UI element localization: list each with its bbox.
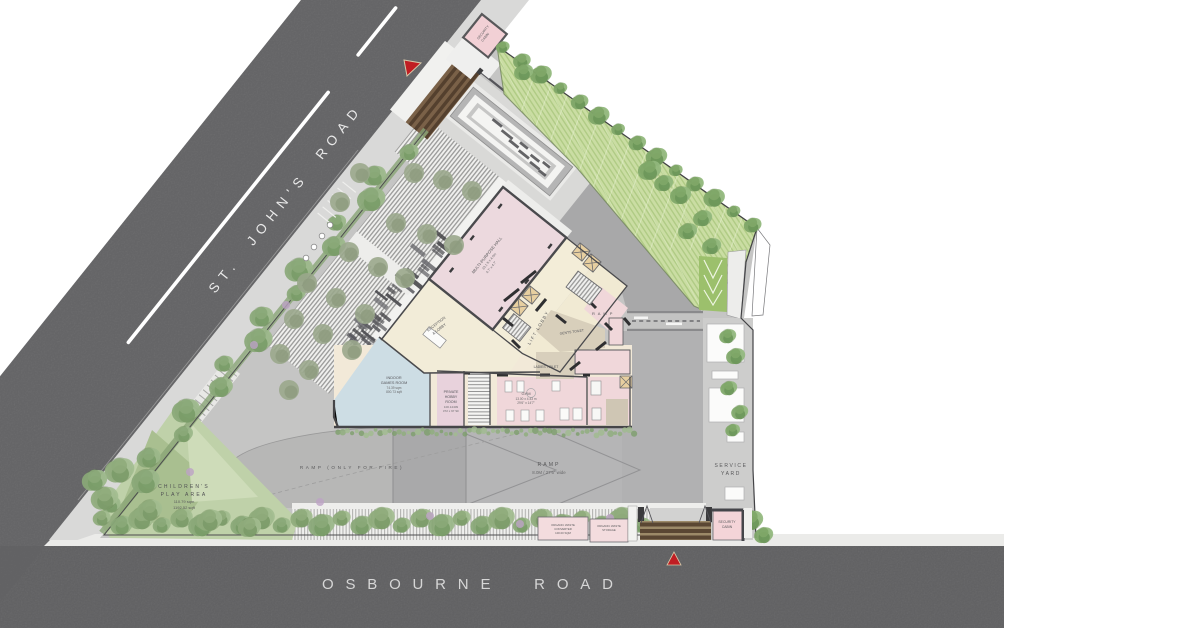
svg-text:RAMP (ONLY FOR FIRE): RAMP (ONLY FOR FIRE) [300,465,404,470]
svg-text:RAMP: RAMP [538,462,561,468]
svg-text:110.79 sqm: 110.79 sqm [174,499,195,504]
svg-text:1192.52 sqft: 1192.52 sqft [173,505,196,510]
svg-text:100.00 SQM: 100.00 SQM [555,531,571,535]
svg-text:SECURITY: SECURITY [718,520,736,524]
svg-text:R A M P: R A M P [592,311,613,316]
svg-text:YARD: YARD [721,471,741,477]
svg-text:SERVICE: SERVICE [714,463,747,469]
svg-text:ROOM: ROOM [445,400,456,404]
svg-text:GYM: GYM [521,391,530,396]
svg-text:CABIN: CABIN [722,525,733,529]
svg-text:29'6" x 14'7": 29'6" x 14'7" [517,401,534,405]
svg-text:372 x 97 SF: 372 x 97 SF [443,409,459,413]
svg-text:CHILDREN'S: CHILDREN'S [158,484,210,490]
svg-text:STORAGE: STORAGE [602,528,616,532]
svg-text:GAMES ROOM: GAMES ROOM [381,381,408,385]
svg-text:INDOOR: INDOOR [386,376,401,380]
svg-text:HOBBY: HOBBY [445,395,458,399]
svg-text:PLAY AREA: PLAY AREA [161,492,208,498]
svg-text:OSBOURNE ROAD: OSBOURNE ROAD [322,576,625,593]
svg-text:8.0M / 27'6" wide: 8.0M / 27'6" wide [532,470,566,475]
svg-text:LADIES TOILET: LADIES TOILET [534,365,559,369]
svg-text:800.73 sqft: 800.73 sqft [386,390,402,394]
svg-text:PRIVATE: PRIVATE [444,390,459,394]
